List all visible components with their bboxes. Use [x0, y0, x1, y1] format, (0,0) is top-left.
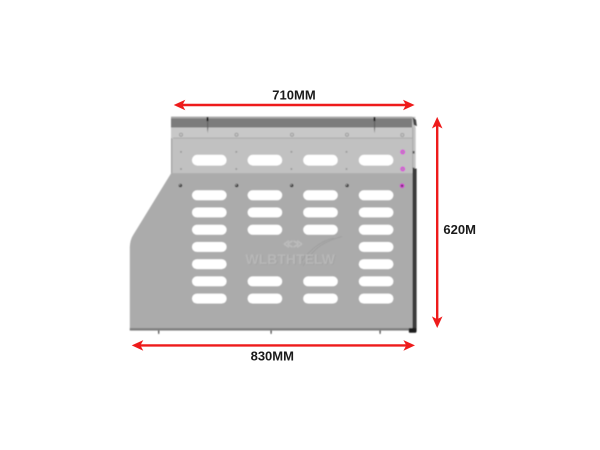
svg-text:WLBTHTELW: WLBTHTELW	[246, 251, 336, 267]
svg-text:830MM: 830MM	[251, 348, 294, 363]
svg-text:620M: 620M	[443, 222, 476, 237]
svg-text:710MM: 710MM	[272, 88, 315, 103]
